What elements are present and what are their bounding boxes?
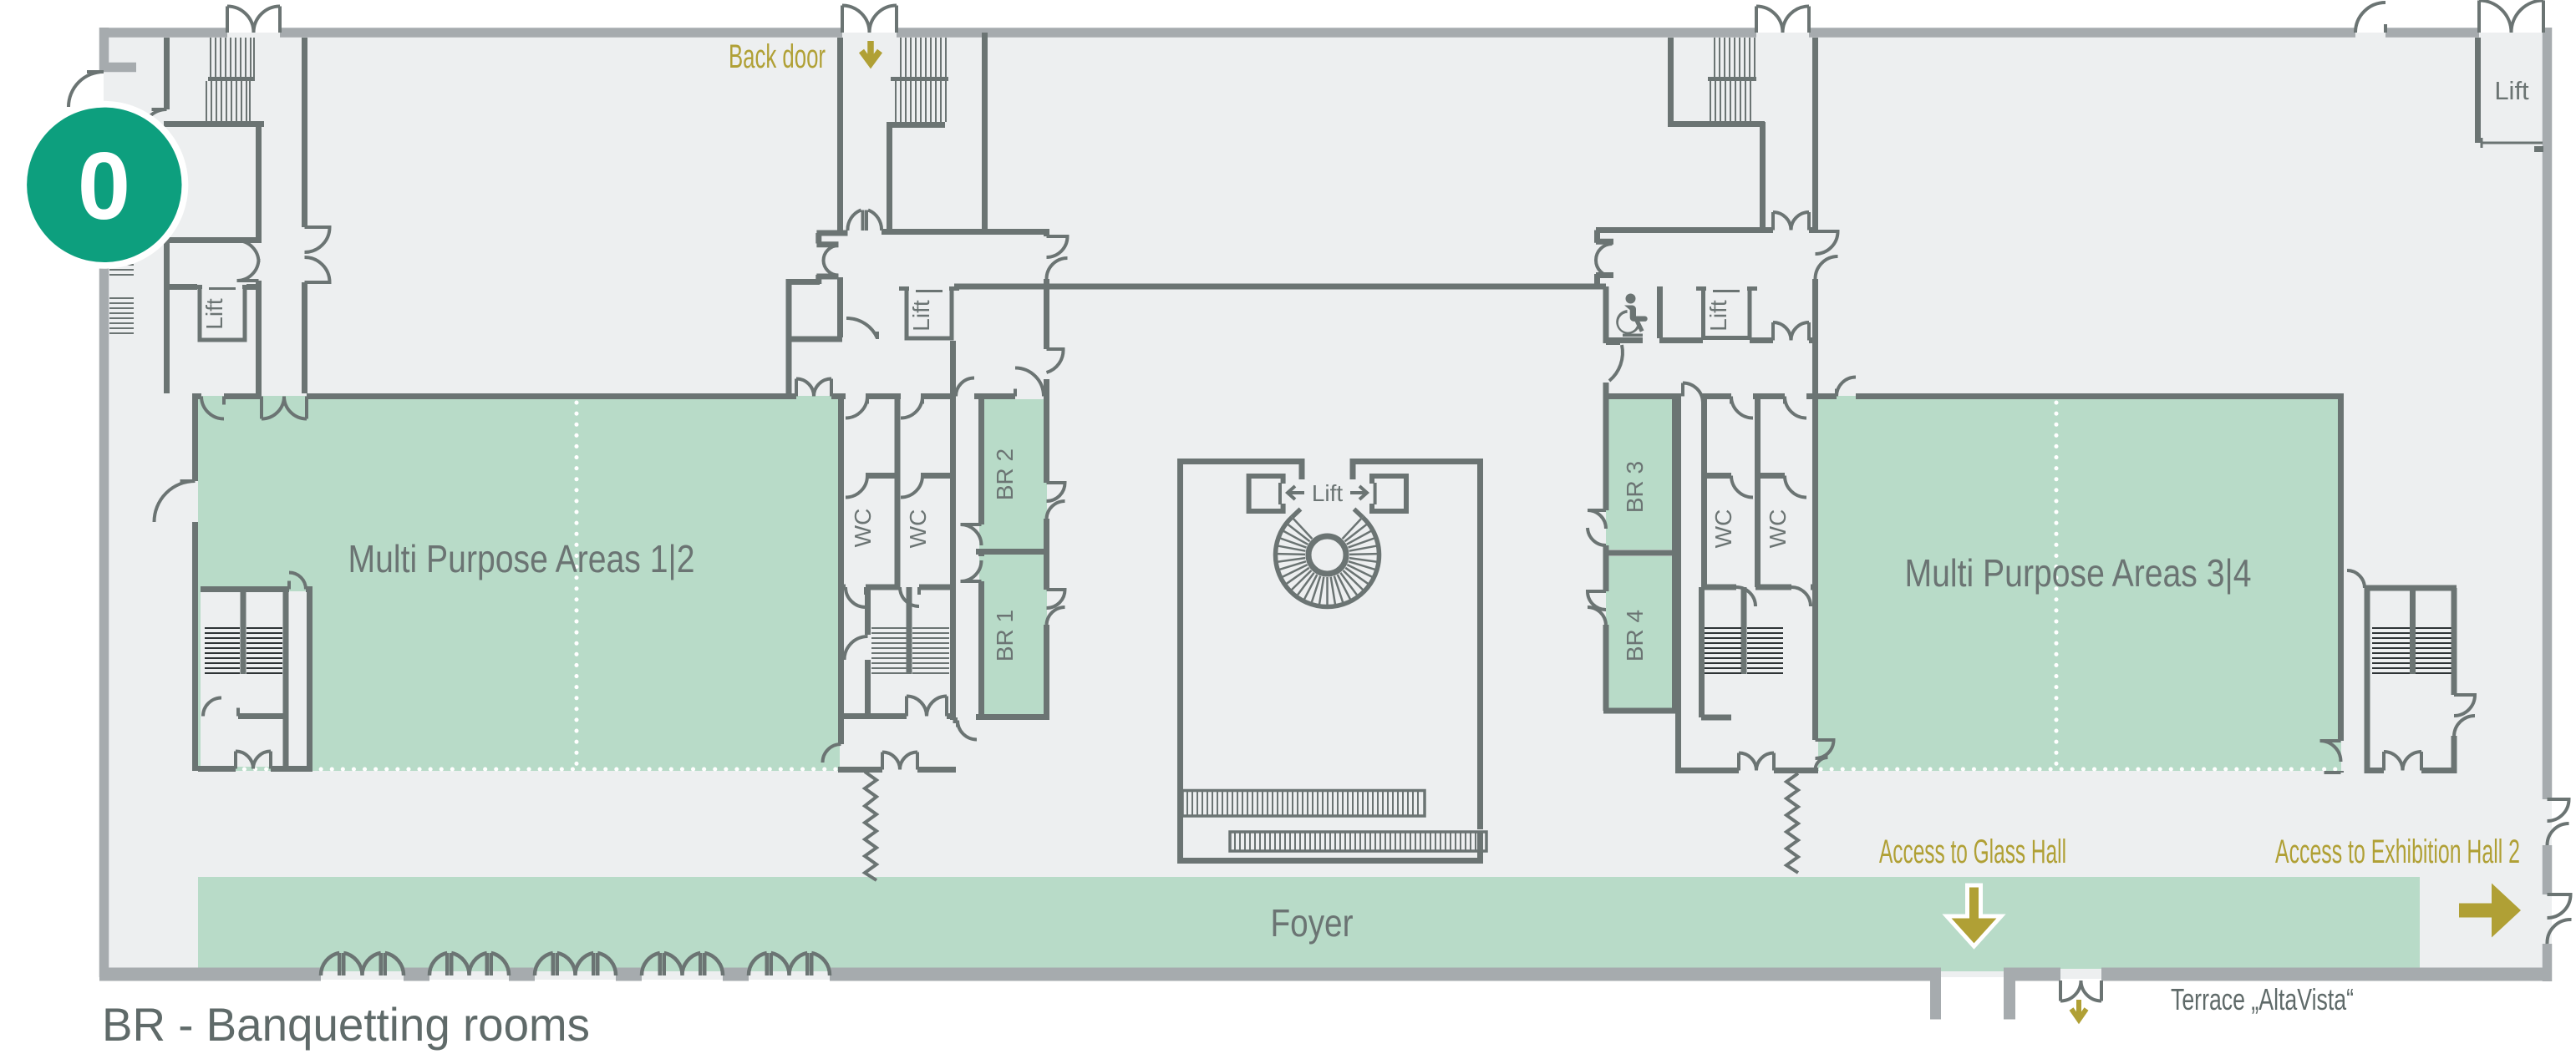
svg-text:BR 4: BR 4 [1622,610,1648,661]
svg-text:Access to Glass Hall: Access to Glass Hall [1879,834,2066,870]
svg-text:WC: WC [1765,509,1791,549]
svg-text:WC: WC [1710,509,1736,549]
svg-text:Lift: Lift [201,298,227,330]
svg-text:Multi Purpose Areas 3|4: Multi Purpose Areas 3|4 [1905,551,2252,595]
svg-text:0: 0 [78,134,130,240]
svg-text:Lift: Lift [908,300,934,332]
svg-text:BR 1: BR 1 [992,610,1018,661]
svg-text:Lift: Lift [1312,480,1344,506]
svg-text:WC: WC [850,509,876,548]
svg-text:BR 2: BR 2 [992,448,1018,500]
svg-text:Lift: Lift [2494,76,2529,105]
svg-text:Terrace „AltaVista“: Terrace „AltaVista“ [2171,982,2354,1016]
svg-text:Lift: Lift [1705,300,1731,332]
svg-text:WC: WC [905,509,931,549]
svg-text:BR 3: BR 3 [1622,461,1648,513]
svg-text:BR - Banquetting rooms: BR - Banquetting rooms [102,998,590,1051]
svg-text:Foyer: Foyer [1271,901,1354,945]
svg-text:Multi Purpose Areas 1|2: Multi Purpose Areas 1|2 [348,537,695,580]
svg-text:Back door: Back door [729,38,826,75]
svg-text:Access to Exhibition Hall 2: Access to Exhibition Hall 2 [2275,834,2520,870]
